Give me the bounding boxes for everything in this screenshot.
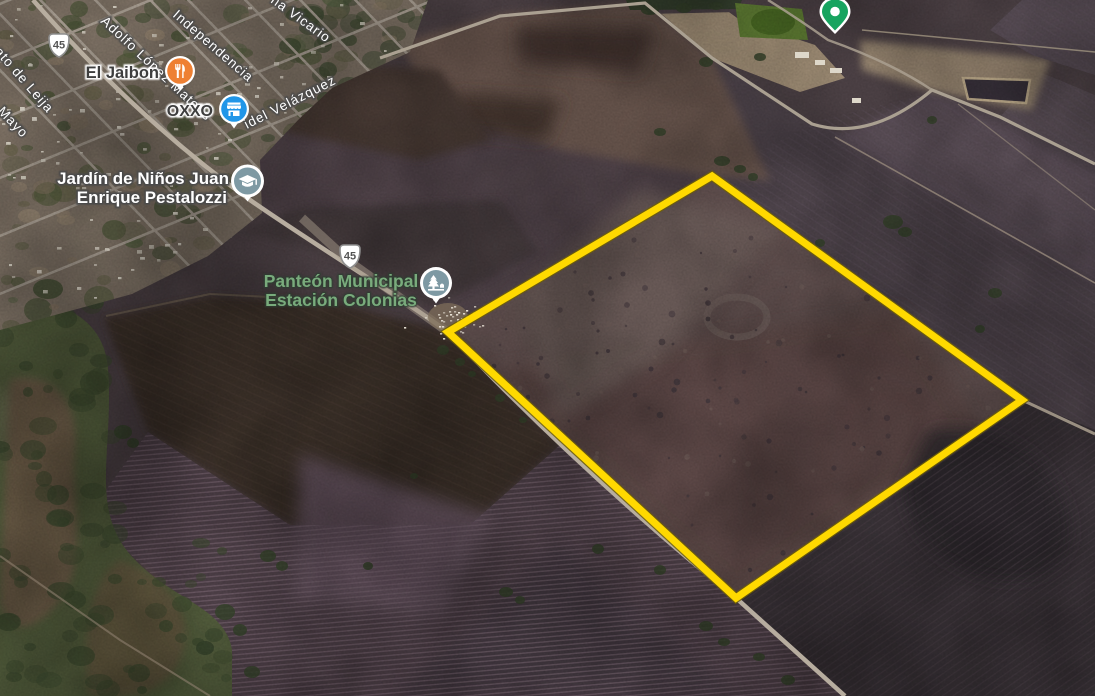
svg-text:Estación Colonias: Estación Colonias — [265, 290, 417, 310]
svg-text:45: 45 — [344, 251, 356, 263]
svg-text:El Jaibon: El Jaibon — [86, 64, 159, 82]
svg-text:Jardín de Niños Juan: Jardín de Niños Juan — [57, 169, 229, 188]
svg-text:Panteón Municipal: Panteón Municipal — [264, 271, 419, 291]
svg-text:45: 45 — [53, 40, 65, 52]
svg-text:Enrique Pestalozzi: Enrique Pestalozzi — [77, 188, 227, 207]
svg-text:OXXO: OXXO — [167, 103, 213, 120]
